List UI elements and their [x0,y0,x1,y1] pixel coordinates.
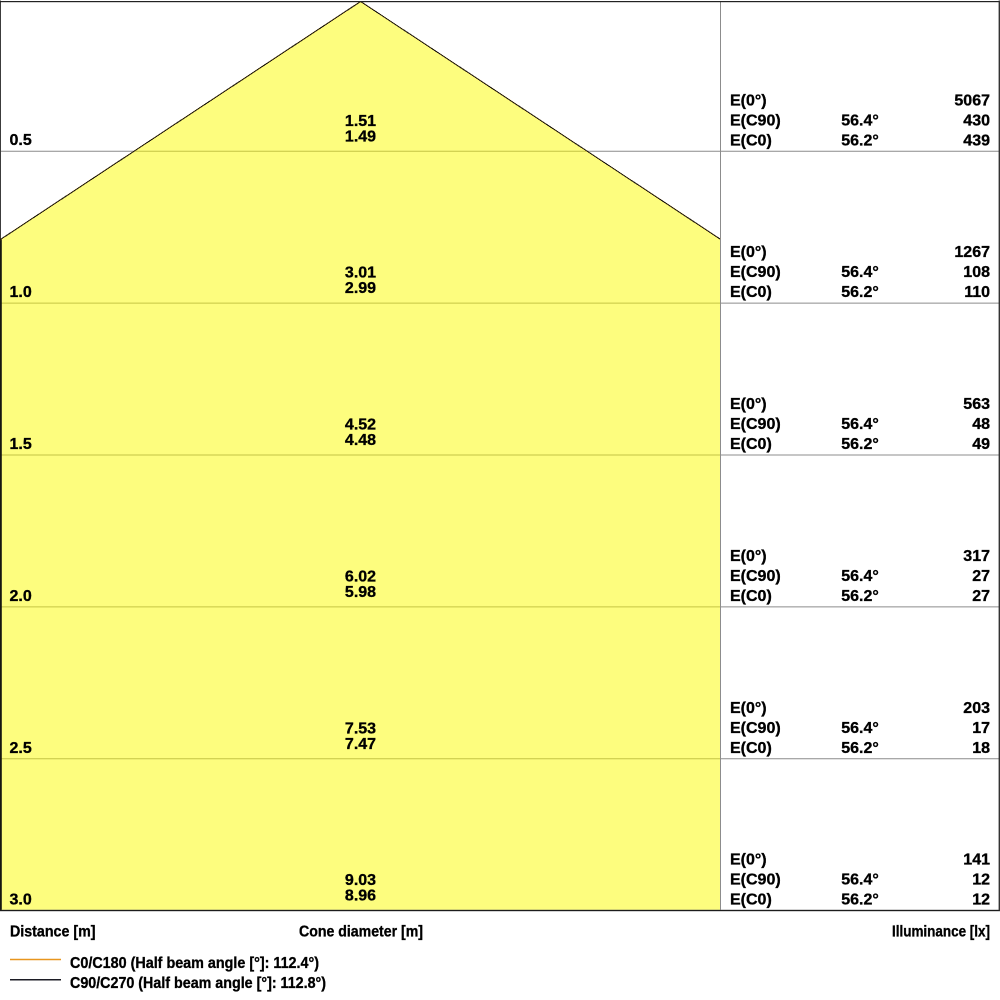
svg-text:56.4°: 56.4° [841,264,879,281]
svg-text:C0/C180 (Half beam angle [°]:: C0/C180 (Half beam angle [°]: 112.4°) [70,955,319,972]
svg-text:1.49: 1.49 [345,128,376,145]
svg-text:56.4°: 56.4° [841,871,879,888]
svg-text:E(0°): E(0°) [730,92,767,109]
svg-text:56.4°: 56.4° [841,112,879,129]
svg-text:56.2°: 56.2° [841,588,879,605]
svg-text:2.0: 2.0 [10,588,32,605]
svg-text:141: 141 [963,851,990,868]
svg-text:56.4°: 56.4° [841,416,879,433]
svg-text:27: 27 [972,568,990,585]
svg-text:3.01: 3.01 [345,265,376,282]
svg-text:Distance [m]: Distance [m] [10,924,96,941]
svg-text:430: 430 [963,112,990,129]
svg-text:317: 317 [963,548,990,565]
svg-text:E(0°): E(0°) [730,548,767,565]
svg-text:56.4°: 56.4° [841,720,879,737]
svg-text:1.5: 1.5 [10,436,32,453]
svg-text:E(C90): E(C90) [730,720,781,737]
svg-text:12: 12 [972,871,990,888]
svg-text:1.51: 1.51 [345,113,376,130]
svg-text:17: 17 [972,720,990,737]
svg-text:E(0°): E(0°) [730,851,767,868]
svg-text:49: 49 [972,436,990,453]
svg-text:5067: 5067 [954,92,990,109]
svg-text:6.02: 6.02 [345,569,376,586]
svg-text:56.2°: 56.2° [841,740,879,757]
svg-text:E(C0): E(C0) [730,740,772,757]
svg-text:E(0°): E(0°) [730,700,767,717]
svg-text:56.4°: 56.4° [841,568,879,585]
svg-text:E(C90): E(C90) [730,568,781,585]
svg-text:4.48: 4.48 [345,432,376,449]
svg-text:56.2°: 56.2° [841,891,879,908]
svg-text:E(C90): E(C90) [730,112,781,129]
svg-text:Cone diameter [m]: Cone diameter [m] [299,924,423,941]
svg-text:7.53: 7.53 [345,720,376,737]
svg-text:E(0°): E(0°) [730,244,767,261]
svg-text:E(C0): E(C0) [730,588,772,605]
svg-text:2.99: 2.99 [345,280,376,297]
svg-text:3.0: 3.0 [10,891,32,908]
svg-text:9.03: 9.03 [345,872,376,889]
svg-text:E(0°): E(0°) [730,396,767,413]
svg-text:27: 27 [972,588,990,605]
svg-text:E(C90): E(C90) [730,416,781,433]
svg-text:110: 110 [964,284,990,301]
svg-text:5.98: 5.98 [345,584,376,601]
svg-text:48: 48 [972,416,990,433]
svg-text:E(C0): E(C0) [730,891,772,908]
svg-text:563: 563 [963,396,990,413]
svg-text:1.0: 1.0 [10,284,32,301]
svg-text:56.2°: 56.2° [841,284,879,301]
svg-text:E(C0): E(C0) [730,284,772,301]
svg-text:0.5: 0.5 [10,132,32,149]
svg-text:E(C0): E(C0) [730,132,772,149]
svg-text:108: 108 [963,264,990,281]
svg-text:7.47: 7.47 [345,736,376,753]
svg-text:56.2°: 56.2° [841,132,879,149]
svg-text:C90/C270 (Half beam angle [°]:: C90/C270 (Half beam angle [°]: 112.8°) [70,975,326,992]
svg-text:56.2°: 56.2° [841,436,879,453]
svg-text:Illuminance [lx]: Illuminance [lx] [892,924,990,941]
svg-text:12: 12 [972,891,990,908]
svg-text:4.52: 4.52 [345,417,376,434]
svg-text:8.96: 8.96 [345,887,376,904]
svg-text:E(C90): E(C90) [730,264,781,281]
svg-text:1267: 1267 [954,244,990,261]
svg-text:439: 439 [963,132,990,149]
svg-text:E(C0): E(C0) [730,436,772,453]
svg-text:2.5: 2.5 [10,740,32,757]
svg-text:203: 203 [963,700,990,717]
svg-text:E(C90): E(C90) [730,871,781,888]
svg-text:18: 18 [972,740,990,757]
